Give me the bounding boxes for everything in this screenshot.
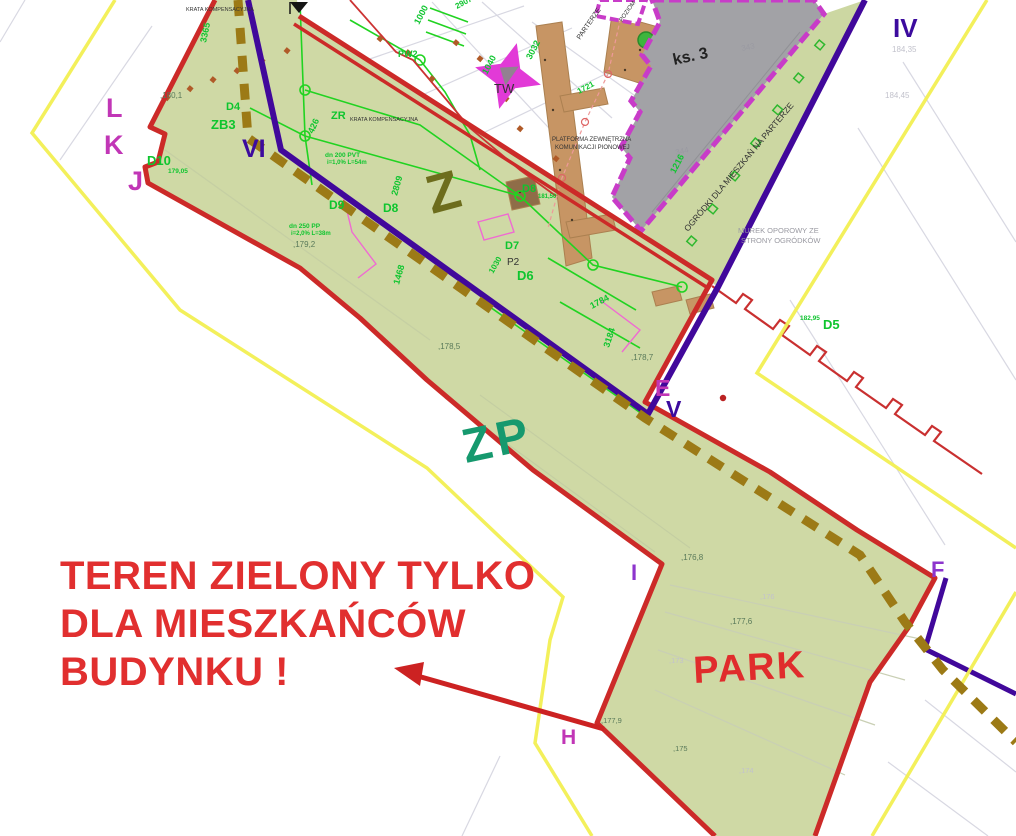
map-text-label: 179,05 [168, 168, 188, 175]
map-text-label: dn 250 PP [289, 223, 321, 230]
map-text-label: ,178,7 [631, 353, 654, 362]
survey-point-f: F [931, 557, 944, 582]
map-text-label: ,180,1 [160, 91, 183, 100]
map-text-label: ,173 [669, 656, 684, 665]
map-text-label: ,178,5 [438, 342, 461, 351]
map-text-label: D8 [383, 201, 399, 215]
survey-point-vi: VI [242, 135, 266, 163]
survey-point-v: V [666, 396, 682, 422]
map-text-label: i=2,0% L=38m [291, 231, 331, 237]
map-text-label: ,177,6 [730, 617, 753, 626]
map-text-label: 184,35 [892, 45, 917, 54]
map-text-label: D7 [505, 240, 519, 252]
map-text-label: ZB3 [211, 117, 236, 132]
survey-point-j: J [128, 166, 143, 196]
map-text-label: STRONY OGRÓDKÓW [741, 236, 821, 245]
survey-point-i: I [631, 560, 637, 585]
map-text-label: dn 200 PVT [325, 152, 360, 159]
map-text-label: MUREK OPOROWY ZE [738, 226, 819, 235]
map-text-label: TW [494, 81, 515, 96]
map-text-label: 182,95 [800, 315, 820, 322]
survey-point-k: K [104, 130, 124, 160]
map-text-label: 184,45 [885, 91, 910, 100]
survey-point-h: H [561, 726, 576, 749]
map-text-label: P2 [507, 257, 520, 268]
map-text-label: PLATFORMA ZEWNĘTRZNA [552, 137, 631, 143]
red-point-marker [720, 395, 726, 401]
map-text-label: KRATA KOMPENSACYJNA [186, 7, 254, 13]
map-text-label: D4 [226, 101, 241, 113]
map-text-label: D9 [329, 198, 345, 212]
map-text-label: ,177,9 [601, 716, 622, 725]
map-text-label: KRATA KOMPENSACYJNA [350, 117, 418, 123]
map-text-label: D8 [522, 183, 536, 195]
map-text-label: D10 [147, 153, 171, 168]
map-text-label: D5 [823, 317, 840, 332]
annotation-line-3: BUDYNKU ! [60, 650, 289, 694]
survey-point-l: L [106, 93, 123, 123]
map-text-label: i=1,0% L=54m [327, 160, 367, 166]
map-text-label: KOMUNIKACJI PIONOWEJ [555, 145, 630, 151]
map-text-label: ZR [331, 110, 346, 122]
map-text-label: D6 [517, 268, 534, 283]
annotation-line-2: DLA MIESZKAŃCÓW [60, 600, 466, 646]
map-text-label: PW2 [398, 49, 418, 59]
map-text-label: ,176 [760, 592, 775, 601]
annotation-line-1: TEREN ZIELONY TYLKO [60, 554, 535, 598]
site-plan-screenshot: ZZPPARKTEREN ZIELONY TYLKODLA MIESZKAŃCÓ… [0, 0, 1016, 836]
map-text-label: ,175 [673, 744, 688, 753]
map-text-label: ,174 [739, 766, 754, 775]
survey-point-iv: IV [893, 13, 918, 43]
map-text-label: ,179,2 [293, 240, 316, 249]
map-text-label: ,176,8 [681, 553, 704, 562]
map-text-label: 181,50 [538, 194, 557, 200]
site-plan-map: ZZPPARKTEREN ZIELONY TYLKODLA MIESZKAŃCÓ… [0, 0, 1016, 836]
zone-label-park: PARK [692, 644, 807, 692]
